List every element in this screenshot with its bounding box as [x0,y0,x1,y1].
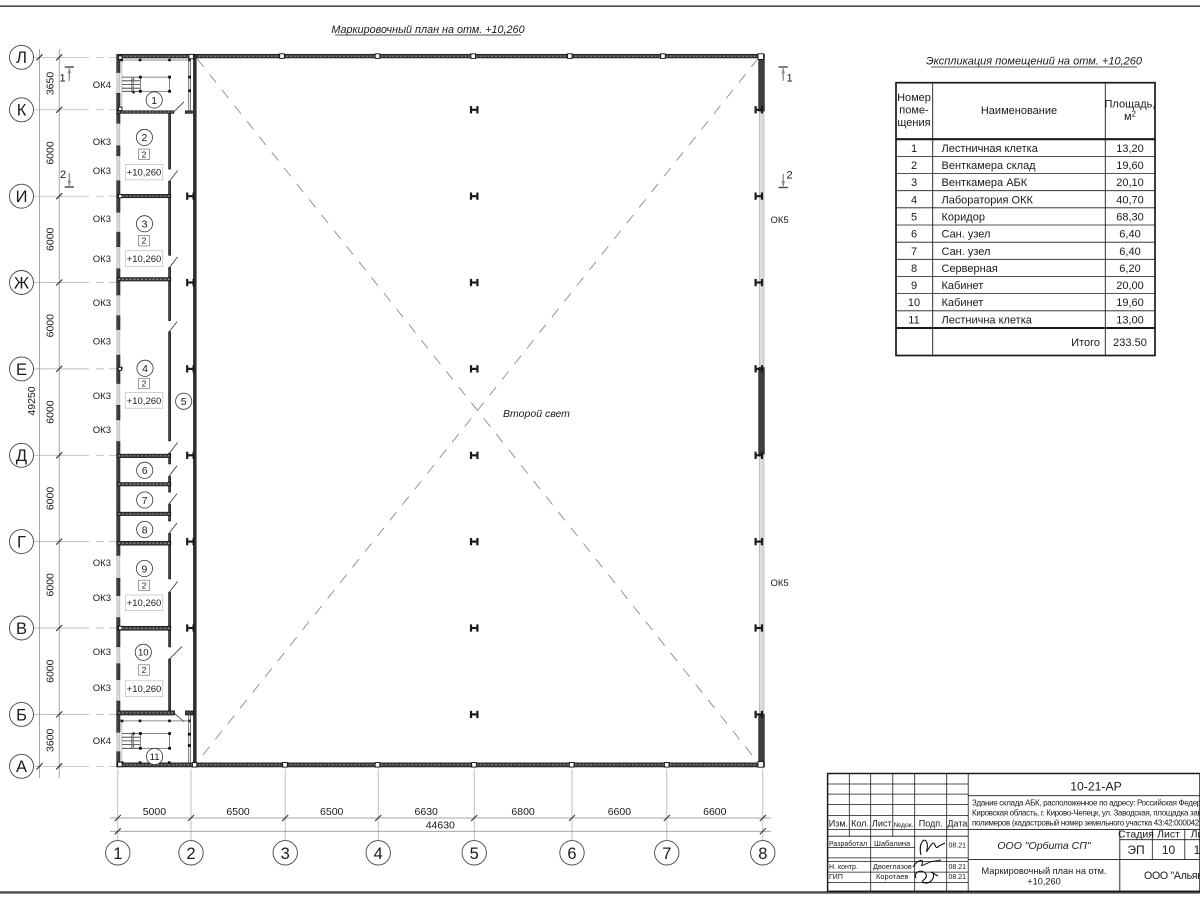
svg-text:6000: 6000 [45,141,57,165]
svg-text:6: 6 [911,229,917,241]
svg-text:13,00: 13,00 [1116,314,1144,326]
svg-text:3: 3 [142,219,148,231]
svg-text:08.21: 08.21 [949,843,967,850]
svg-text:Сан. узел: Сан. узел [942,246,991,258]
svg-text:Маркировочный план на отм.: Маркировочный план на отм. [982,866,1107,876]
svg-text:08.21: 08.21 [949,864,967,871]
svg-text:2: 2 [911,160,917,172]
svg-text:ГИП: ГИП [829,874,843,881]
svg-text:К: К [17,102,27,120]
svg-text:ЭП: ЭП [1127,843,1144,857]
svg-text:6800: 6800 [511,806,535,818]
svg-text:Коротаев: Коротаев [876,872,908,881]
svg-text:Лестнична клетка: Лестнична клетка [942,314,1033,326]
svg-text:ОК3: ОК3 [93,214,111,225]
svg-text:ОК3: ОК3 [93,647,111,658]
svg-text:Стадия: Стадия [1118,829,1154,841]
svg-text:Венткамера АБК: Венткамера АБК [942,177,1028,189]
svg-text:Лестничная клетка: Лестничная клетка [942,143,1039,155]
svg-text:ОК5: ОК5 [771,578,789,589]
svg-text:9: 9 [141,563,147,575]
svg-text:19,60: 19,60 [1116,297,1144,309]
svg-text:+10,260: +10,260 [1027,877,1060,887]
svg-text:Разработал: Разработал [829,840,867,848]
svg-text:11: 11 [150,752,160,763]
svg-text:40,70: 40,70 [1116,194,1144,206]
svg-text:Второй свет: Второй свет [503,408,570,420]
svg-text:+10,260: +10,260 [127,684,162,695]
svg-text:1: 1 [1194,843,1200,857]
svg-text:1: 1 [59,73,65,85]
svg-text:68,30: 68,30 [1116,211,1144,223]
svg-text:1: 1 [911,143,917,155]
svg-text:ОК3: ОК3 [93,425,111,436]
svg-text:10: 10 [908,297,920,309]
svg-text:ОК3: ОК3 [93,254,111,265]
svg-text:08.21: 08.21 [949,874,967,881]
svg-text:щения: щения [897,117,930,129]
svg-text:49250: 49250 [26,386,38,415]
svg-text:3: 3 [911,177,917,189]
svg-text:ООО "Орбита СП": ООО "Орбита СП" [997,840,1091,852]
svg-text:Кабинет: Кабинет [942,297,984,309]
svg-text:8: 8 [142,524,148,536]
svg-text:7: 7 [911,246,917,258]
svg-text:3600: 3600 [45,728,57,752]
svg-text:2: 2 [142,379,147,389]
svg-text:6000: 6000 [45,400,57,424]
svg-text:+10,260: +10,260 [127,396,162,407]
svg-text:2: 2 [186,845,195,863]
svg-text:Ли: Ли [1191,829,1200,841]
svg-text:13,20: 13,20 [1116,143,1144,155]
svg-text:8: 8 [911,263,917,275]
svg-text:И: И [16,188,28,206]
svg-text:4: 4 [374,845,383,863]
svg-text:2: 2 [141,132,147,144]
svg-text:6000: 6000 [45,573,57,597]
svg-text:10: 10 [1162,843,1176,857]
svg-text:3: 3 [281,845,290,863]
svg-text:10: 10 [138,648,149,659]
svg-text:Лист: Лист [1157,829,1180,841]
svg-text:6: 6 [142,465,148,477]
svg-text:3650: 3650 [45,72,57,96]
svg-text:6,40: 6,40 [1119,229,1140,241]
svg-text:4: 4 [911,194,917,206]
svg-text:ОК3: ОК3 [93,337,111,348]
svg-text:ОК3: ОК3 [93,593,111,604]
svg-text:Маркировочный план на отм. +10: Маркировочный план на отм. +10,260 [331,24,524,36]
svg-text:Шабалина: Шабалина [874,839,911,848]
svg-text:ОК4: ОК4 [93,80,111,91]
svg-text:5: 5 [181,396,187,408]
svg-text:Коридор: Коридор [942,211,985,223]
svg-text:Номер: Номер [897,92,931,104]
svg-text:8: 8 [758,845,767,863]
svg-text:Экспликация помещений на отм.: Экспликация помещений на отм. +10,260 [926,56,1143,68]
svg-text:233.50: 233.50 [1113,337,1147,349]
svg-text:2: 2 [786,169,792,181]
svg-text:1: 1 [113,845,122,863]
svg-text:ОК3: ОК3 [93,683,111,694]
svg-text:ОК3: ОК3 [93,391,111,402]
svg-text:+10,260: +10,260 [127,598,162,609]
svg-text:11: 11 [908,314,919,326]
svg-text:№док.: №док. [894,822,914,829]
svg-text:ОК3: ОК3 [93,137,111,148]
svg-text:+10,260: +10,260 [127,168,162,179]
svg-text:4: 4 [142,363,148,375]
svg-text:7: 7 [142,495,148,507]
svg-text:Г: Г [17,534,26,552]
svg-text:Лаборатория ОКК: Лаборатория ОКК [942,194,1034,206]
svg-text:6500: 6500 [320,806,344,818]
svg-text:поме-: поме- [899,105,929,117]
svg-text:Кол.: Кол. [851,819,869,829]
svg-text:ООО "Альянс Консалт": ООО "Альянс Консалт" [1144,870,1200,882]
svg-text:2: 2 [142,665,147,675]
svg-text:Б: Б [16,706,27,724]
svg-text:6,20: 6,20 [1119,263,1140,275]
svg-text:полимеров (кадастровый номер з: полимеров (кадастровый номер земельного … [972,819,1200,828]
svg-text:6000: 6000 [45,227,57,251]
svg-text:Здание склада АБК, расположенн: Здание склада АБК, расположенное по адре… [972,799,1200,808]
svg-text:Сан. узел: Сан. узел [942,229,991,241]
svg-text:19,60: 19,60 [1116,160,1144,172]
svg-text:Кировская область, г. Кирово-Ч: Кировская область, г. Кирово-Чепецк, ул.… [972,809,1200,818]
svg-text:Площадь,: Площадь, [1105,99,1156,111]
svg-text:2: 2 [142,149,147,159]
svg-text:9: 9 [911,280,917,292]
svg-text:2: 2 [142,580,147,590]
svg-text:6600: 6600 [608,806,632,818]
svg-text:Л: Л [16,49,27,67]
svg-text:6,40: 6,40 [1119,246,1140,258]
svg-text:44630: 44630 [426,819,455,831]
svg-text:20,00: 20,00 [1116,280,1144,292]
svg-text:Наименование: Наименование [981,105,1057,117]
svg-text:6000: 6000 [45,659,57,683]
svg-text:Изм.: Изм. [829,819,848,829]
svg-text:А: А [16,758,27,776]
svg-text:Лист: Лист [872,819,892,829]
svg-text:Н. контр.: Н. контр. [829,864,858,871]
svg-text:Е: Е [16,361,27,379]
svg-text:Д: Д [16,447,27,465]
svg-text:6000: 6000 [45,487,57,511]
svg-text:ОК3: ОК3 [93,298,111,309]
svg-text:10-21-АР: 10-21-АР [1070,779,1122,793]
svg-text:Серверная: Серверная [942,263,998,275]
svg-text:Двоеглазов: Двоеглазов [873,862,912,871]
svg-text:Итого: Итого [1071,337,1100,349]
svg-text:5: 5 [911,211,917,223]
svg-text:Венткамера склад: Венткамера склад [942,160,1037,172]
svg-text:Ж: Ж [14,274,30,292]
svg-text:Кабинет: Кабинет [942,280,984,292]
svg-text:Подп.: Подп. [919,819,943,829]
svg-text:В: В [16,620,27,638]
svg-text:6: 6 [567,845,576,863]
svg-text:7: 7 [662,845,671,863]
svg-text:6500: 6500 [226,806,250,818]
svg-text:5: 5 [470,845,479,863]
svg-text:6000: 6000 [45,314,57,338]
svg-text:6600: 6600 [703,806,727,818]
svg-text:6630: 6630 [415,806,439,818]
svg-text:ОК3: ОК3 [93,558,111,569]
svg-text:2: 2 [142,236,147,246]
svg-text:ОК3: ОК3 [93,166,111,177]
svg-text:Дата: Дата [947,819,967,829]
svg-text:1: 1 [151,95,157,107]
svg-text:ОК4: ОК4 [93,736,111,747]
svg-text:5000: 5000 [143,806,167,818]
svg-text:ОК5: ОК5 [771,215,789,226]
svg-text:2: 2 [60,169,66,181]
svg-text:+10,260: +10,260 [127,254,162,265]
svg-text:20,10: 20,10 [1116,177,1144,189]
svg-text:1: 1 [786,73,792,85]
